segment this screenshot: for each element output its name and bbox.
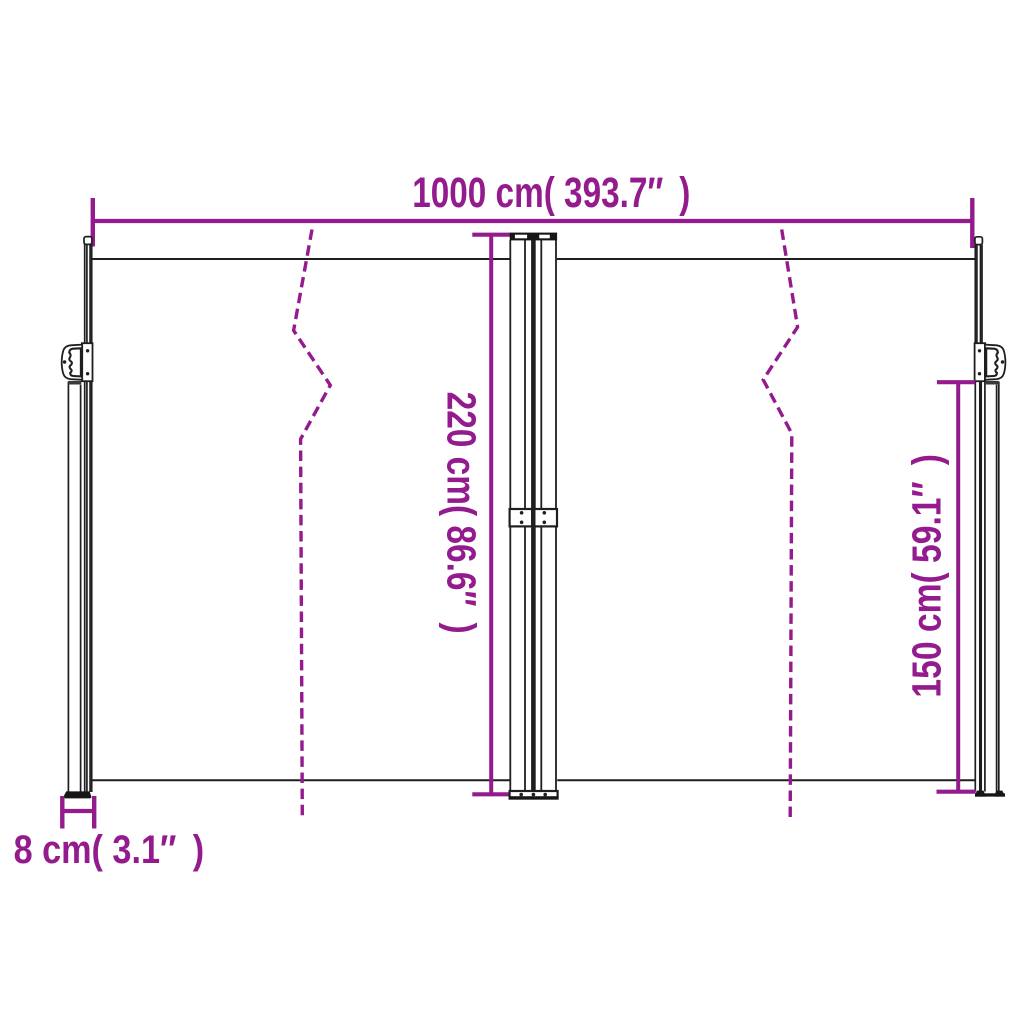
svg-text:150 cm( 59.1″ ): 150 cm( 59.1″ ) bbox=[904, 454, 950, 698]
svg-text:1000 cm( 393.7″ ): 1000 cm( 393.7″ ) bbox=[412, 170, 690, 217]
svg-text:8 cm( 3.1″ ): 8 cm( 3.1″ ) bbox=[14, 828, 205, 872]
svg-text:220 cm( 86.6″ ): 220 cm( 86.6″ ) bbox=[438, 392, 484, 634]
